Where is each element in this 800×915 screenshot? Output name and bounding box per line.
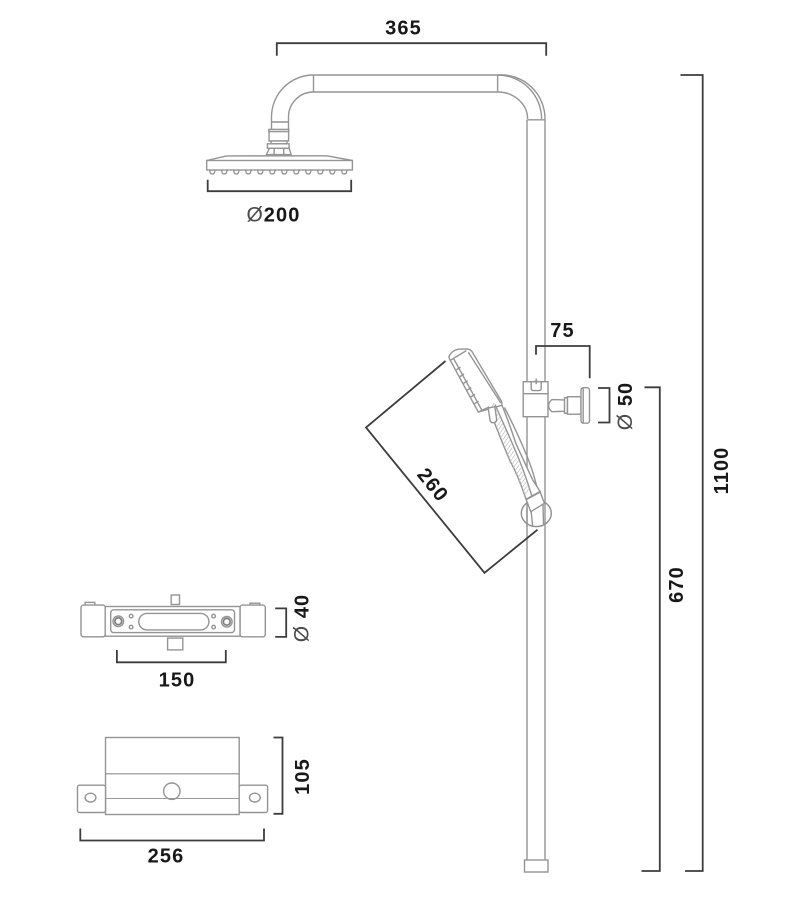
svg-text:150: 150 [159, 669, 196, 691]
svg-text:365: 365 [385, 18, 422, 40]
svg-text:Ø200: Ø200 [247, 203, 301, 226]
svg-text:260: 260 [412, 464, 452, 506]
svg-text:670: 670 [666, 566, 688, 603]
svg-text:1100: 1100 [711, 447, 733, 495]
svg-text:256: 256 [148, 845, 185, 867]
svg-text:Ø 50: Ø 50 [614, 382, 637, 431]
svg-text:105: 105 [292, 758, 314, 795]
svg-text:75: 75 [550, 320, 574, 342]
svg-text:Ø 40: Ø 40 [291, 594, 314, 643]
